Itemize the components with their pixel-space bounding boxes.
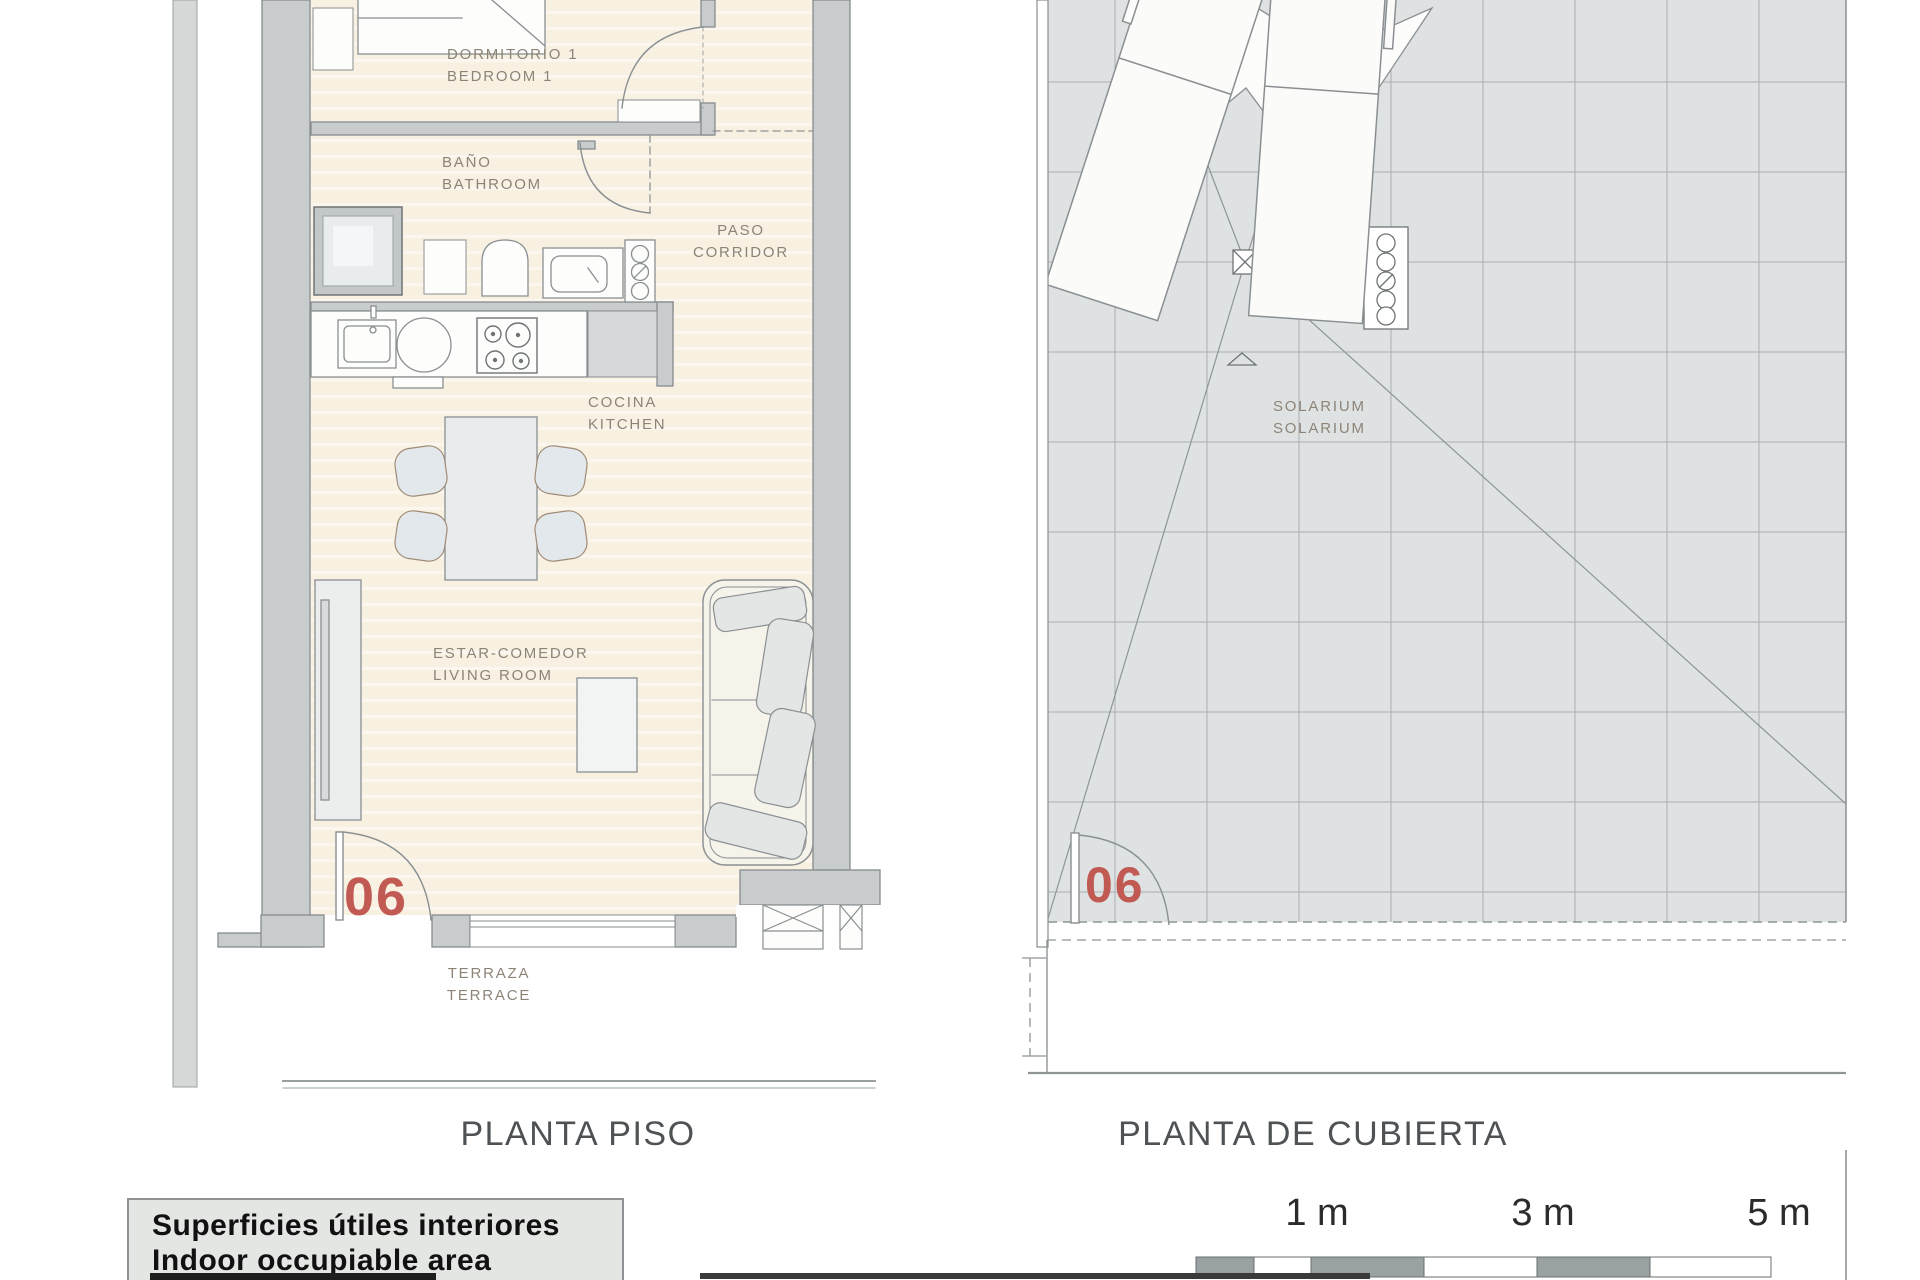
floorplan-sheet: DORMITORIO 1 BEDROOM 1 BAÑO BATHROOM PAS… <box>0 0 1920 1280</box>
room-label-bathroom-en: BATHROOM <box>442 174 542 196</box>
room-label-corridor-en: CORRIDOR <box>693 242 789 264</box>
coffee-table <box>577 678 637 772</box>
room-label-bedroom-en: BEDROOM 1 <box>447 66 578 88</box>
room-label-solarium: SOLARIUM SOLARIUM <box>1273 396 1366 440</box>
room-label-kitchen: COCINA KITCHEN <box>588 392 666 436</box>
hob <box>477 318 537 373</box>
sofa <box>703 580 818 865</box>
dining-table <box>445 417 537 580</box>
room-label-living-es: ESTAR-COMEDOR <box>433 643 589 665</box>
room-label-kitchen-es: COCINA <box>588 392 666 414</box>
fridge <box>588 311 657 377</box>
shower <box>314 207 402 295</box>
floor-unit-number: 06 <box>344 866 408 928</box>
plan-linework <box>0 0 1920 1280</box>
room-label-bedroom-es: DORMITORIO 1 <box>447 44 578 66</box>
room-label-living: ESTAR-COMEDOR LIVING ROOM <box>433 643 589 687</box>
room-label-terrace-es: TERRAZA <box>447 963 531 985</box>
living-room-window <box>470 915 675 947</box>
room-label-solarium-es: SOLARIUM <box>1273 396 1366 418</box>
room-label-bathroom-es: BAÑO <box>442 152 542 174</box>
lintel-box <box>618 100 700 122</box>
cutoff-text-center <box>700 1273 1370 1279</box>
room-label-corridor: PASO CORRIDOR <box>693 220 789 264</box>
tv-cabinet <box>315 580 361 820</box>
room-label-bathroom: BAÑO BATHROOM <box>442 152 542 196</box>
room-label-solarium-en: SOLARIUM <box>1273 418 1366 440</box>
cutoff-text-legend <box>150 1273 436 1280</box>
roof-plan-caption: PLANTA DE CUBIERTA <box>1118 1115 1508 1154</box>
party-wall <box>173 0 197 1087</box>
room-label-living-en: LIVING ROOM <box>433 665 589 687</box>
roof-unit-number: 06 <box>1085 856 1145 914</box>
scale-label-3m: 3 m <box>1511 1192 1574 1235</box>
toilet <box>482 240 528 296</box>
room-label-terrace: TERRAZA TERRACE <box>447 963 531 1007</box>
room-label-kitchen-en: KITCHEN <box>588 414 666 436</box>
legend-box: Superficies útiles interiores Indoor occ… <box>127 1198 624 1280</box>
legend-line-es: Superficies útiles interiores <box>152 1208 622 1243</box>
nightstand <box>313 8 353 70</box>
washer-column <box>625 240 655 302</box>
blind-boxes <box>763 905 862 949</box>
bathroom-sink <box>543 248 623 298</box>
room-label-bedroom: DORMITORIO 1 BEDROOM 1 <box>447 44 578 88</box>
vent-stack <box>1364 227 1408 329</box>
bathroom-cabinet <box>424 240 466 294</box>
terrace-edge <box>283 1081 875 1088</box>
room-label-corridor-es: PASO <box>693 220 789 242</box>
roof-plan-drawing <box>1022 0 1846 1280</box>
scale-label-5m: 5 m <box>1747 1192 1810 1235</box>
room-label-terrace-en: TERRACE <box>447 985 531 1007</box>
floor-plan-caption: PLANTA PISO <box>460 1115 695 1154</box>
scale-label-1m: 1 m <box>1285 1192 1348 1235</box>
